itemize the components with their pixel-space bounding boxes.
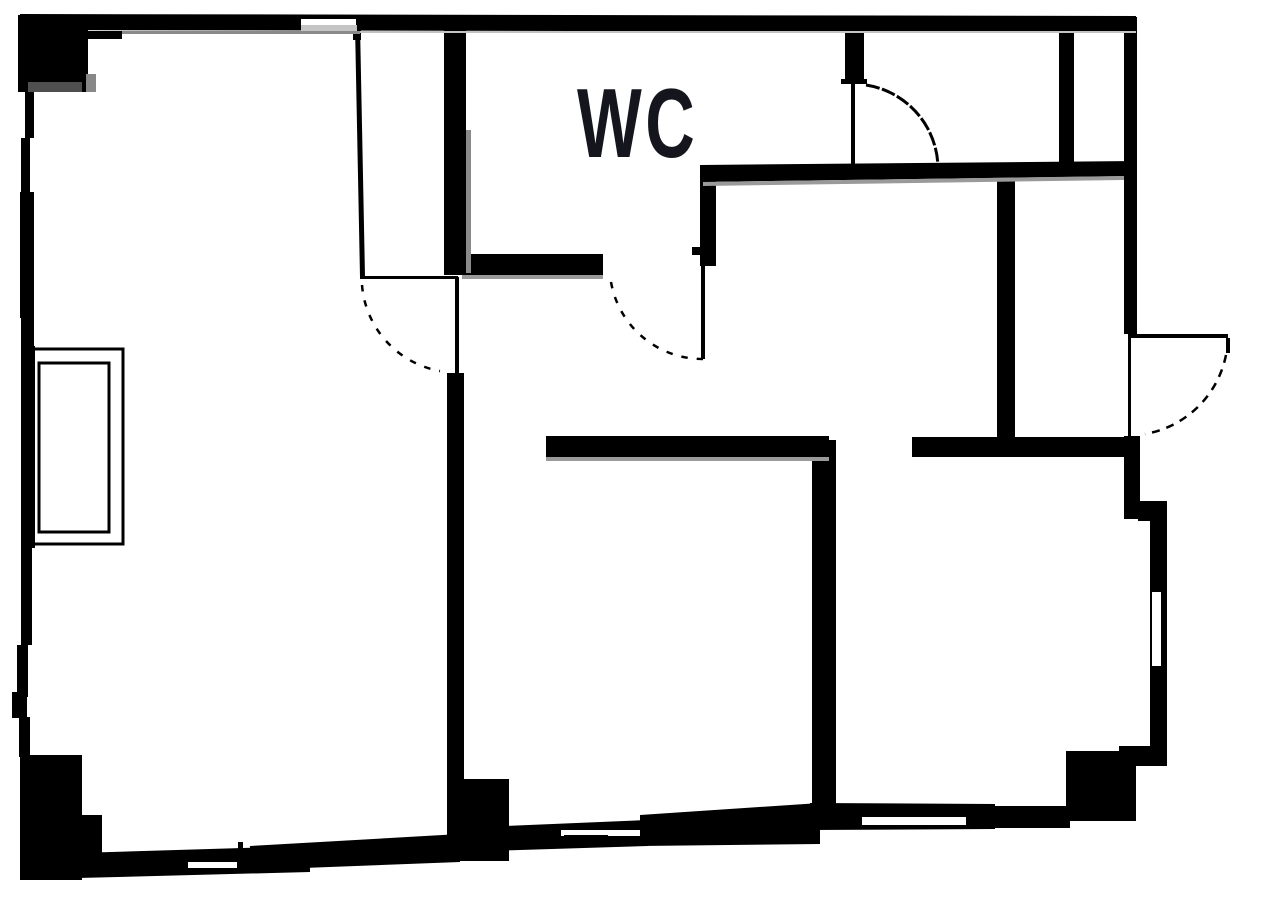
svg-text:WC: WC (577, 68, 698, 178)
